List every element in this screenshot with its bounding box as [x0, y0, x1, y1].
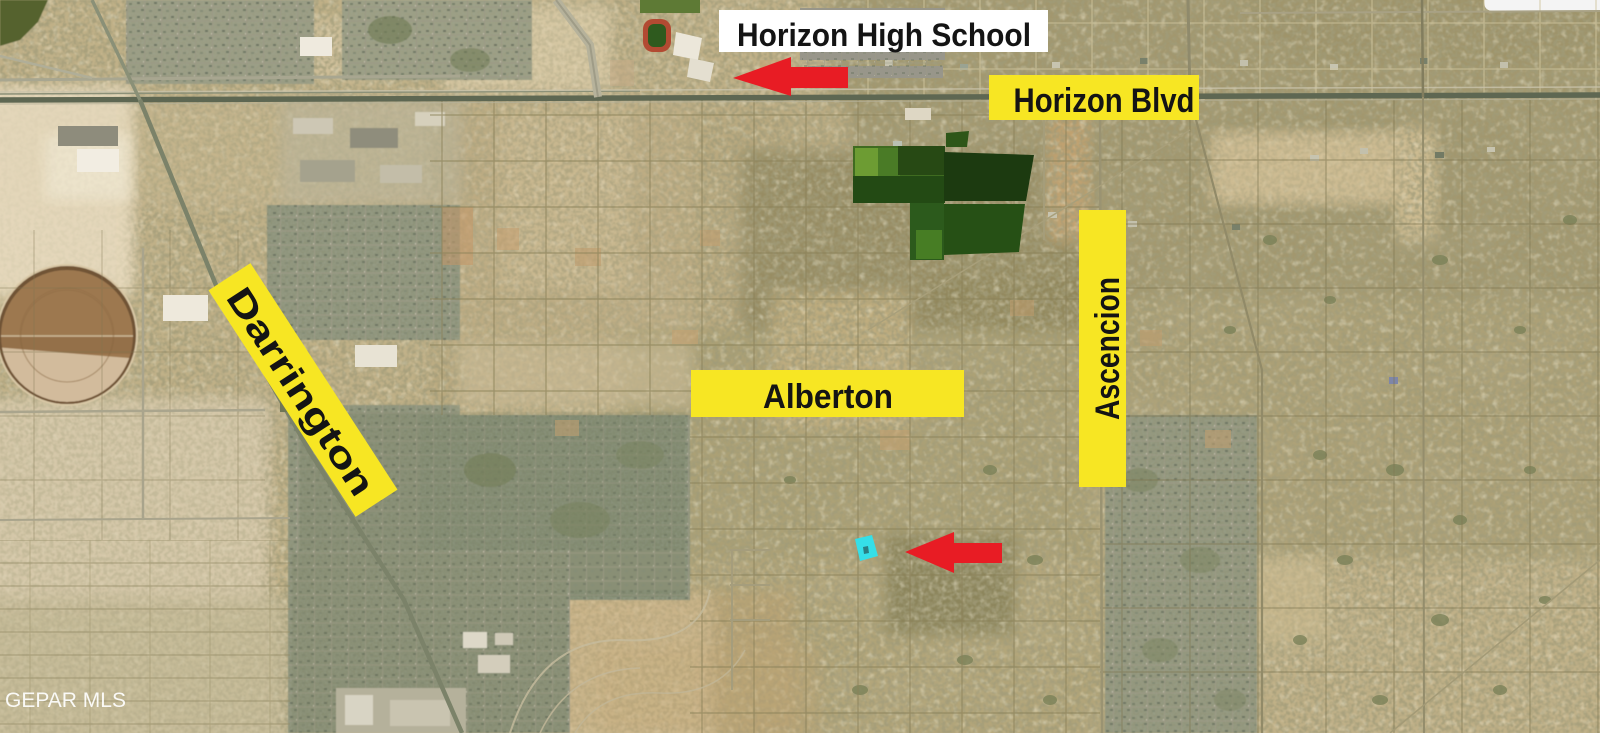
svg-text:GEPAR MLS: GEPAR MLS — [5, 689, 126, 712]
svg-text:Alberton: Alberton — [763, 378, 893, 416]
svg-text:Horizon High School: Horizon High School — [737, 17, 1031, 53]
svg-text:Horizon Blvd: Horizon Blvd — [1014, 82, 1195, 120]
svg-text:Ascencion: Ascencion — [1089, 277, 1127, 420]
